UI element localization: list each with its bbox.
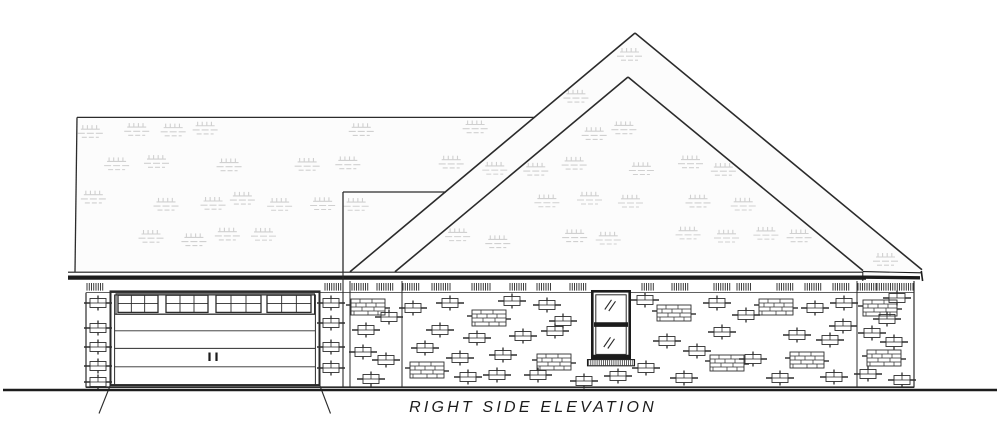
elevation-drawing: RIGHT SIDE ELEVATION: [0, 0, 1000, 421]
frieze-brick-dentils: [87, 283, 913, 291]
elevation-sheet: RIGHT SIDE ELEVATION: [0, 0, 1000, 421]
drawing-title: RIGHT SIDE ELEVATION: [409, 399, 657, 416]
roof-area: [75, 33, 922, 272]
double-hung-window: [588, 291, 635, 366]
garage-door: [110, 291, 320, 385]
brick-accents: [84, 291, 916, 390]
eave-fascia-band: [68, 271, 923, 281]
